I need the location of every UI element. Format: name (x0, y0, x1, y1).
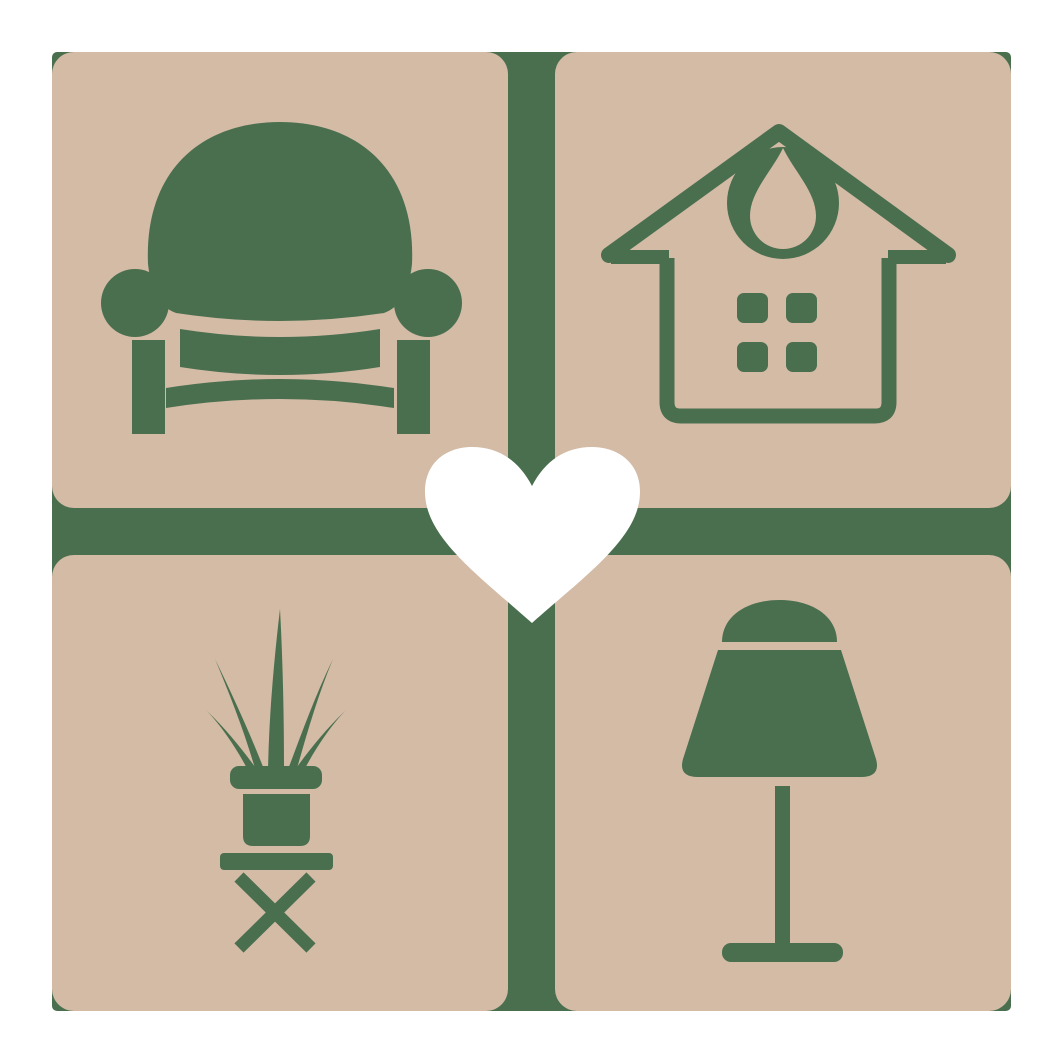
lamp-stem (775, 786, 790, 946)
lamp-base (722, 943, 843, 962)
tile-plant (52, 555, 508, 1011)
house-window-pane-bottom-right (786, 342, 817, 372)
house-tile-background (555, 52, 1011, 508)
armchair-armrest-right (394, 269, 462, 337)
house-window-pane-top-right (786, 293, 817, 323)
armchair-leg-right (397, 340, 430, 434)
plant-pot-rim (230, 766, 322, 789)
logo-canvas (0, 0, 1063, 1063)
plant-pot-body (243, 794, 310, 846)
tile-lamp (555, 555, 1011, 1011)
tile-house (555, 52, 1011, 508)
armchair-armrest-left (101, 269, 169, 337)
stool-top (220, 853, 333, 870)
house-window-pane-bottom-left (737, 342, 768, 372)
furniture-logo (0, 0, 1063, 1063)
tile-armchair (52, 52, 508, 508)
house-window-pane-top-left (737, 293, 768, 323)
armchair-leg-left (132, 340, 165, 434)
